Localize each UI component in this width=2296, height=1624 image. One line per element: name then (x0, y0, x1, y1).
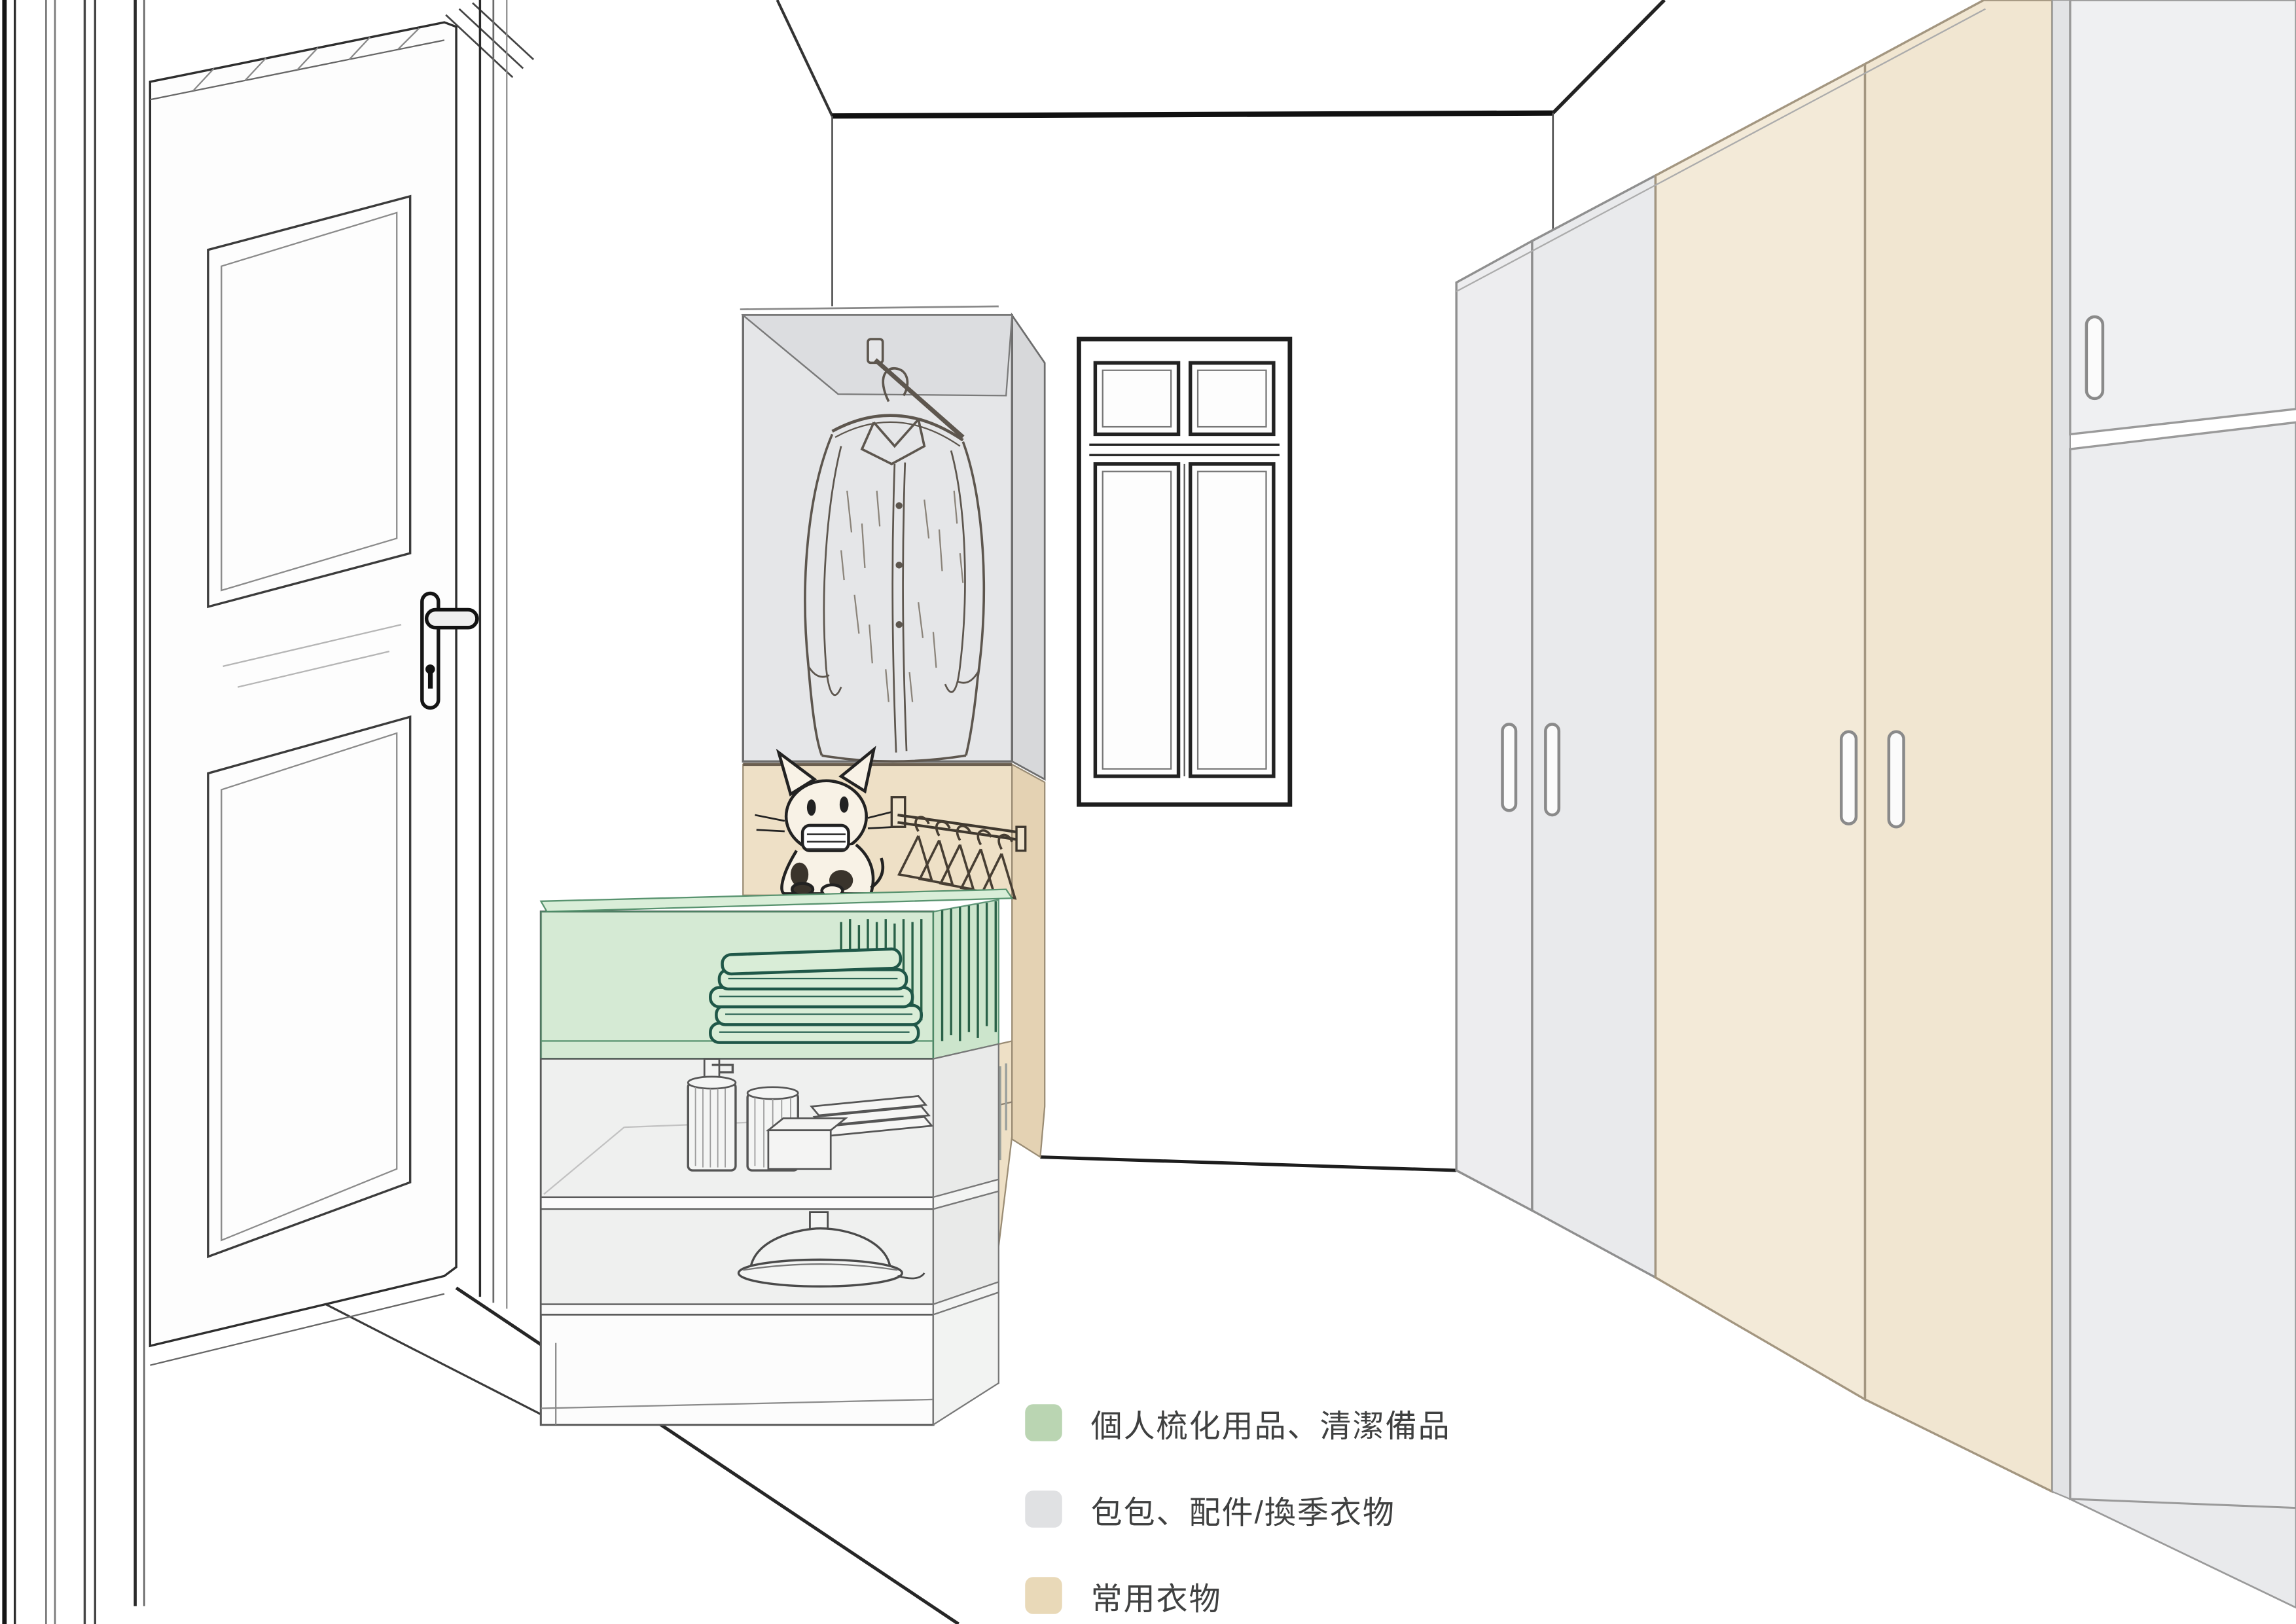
hat-shelf (541, 1209, 933, 1304)
door-handle-icon[interactable] (1503, 724, 1516, 810)
door-handle-icon[interactable] (1889, 732, 1904, 827)
wardrobe-base-side (2070, 1499, 2296, 1608)
wardrobe-door-beige-1[interactable] (1655, 64, 1865, 1399)
door-wall-trim (5, 0, 144, 1624)
dressing-room-illustration: 個人梳化用品、清潔備品 包包、配件/換季衣物 常用衣物 (0, 0, 2296, 1624)
wardrobe-door-gray-1[interactable] (1456, 241, 1532, 1210)
legend-swatch-grooming (1024, 1403, 1063, 1442)
legend-label: 包包、配件/換季衣物 (1091, 1487, 1395, 1532)
door-handle-icon[interactable] (1841, 732, 1856, 824)
door-header-hatch (446, 3, 533, 78)
tall-unit-side (1012, 316, 1045, 780)
window (1079, 339, 1289, 804)
legend-label: 個人梳化用品、清潔備品 (1091, 1400, 1451, 1446)
legend-swatch-bags (1024, 1490, 1063, 1528)
wardrobe-filler-panel (2053, 0, 2070, 1499)
folded-clothes-stack (710, 948, 921, 1042)
tall-door-far-right[interactable] (2070, 422, 2296, 1508)
lower-cabinet (541, 890, 1012, 1425)
cabinet-side-faces (933, 1044, 999, 1425)
beige-section-side (1012, 765, 1045, 1157)
door-jamb-right (480, 0, 507, 1308)
legend-label: 常用衣物 (1091, 1573, 1222, 1619)
cabinet-base (541, 1314, 933, 1424)
window-pane-bottom-left (1095, 464, 1178, 776)
lever-handle-icon (427, 610, 477, 628)
entry-door (5, 0, 533, 1624)
legend-item: 包包、配件/換季衣物 (1024, 1487, 1451, 1532)
door-handle-icon[interactable] (2087, 317, 2103, 399)
door-handle-icon[interactable] (1545, 724, 1558, 815)
scene-drawing (0, 0, 2296, 1624)
toiletries-shelf (541, 1059, 933, 1197)
window-pane-top-right (1191, 363, 1274, 434)
window-pane-top-left (1095, 363, 1178, 434)
legend-item: 個人梳化用品、清潔備品 (1024, 1400, 1451, 1446)
legend-item: 常用衣物 (1024, 1573, 1451, 1619)
legend-swatch-everyday (1024, 1576, 1063, 1615)
wardrobe-right (1456, 0, 2296, 1608)
window-pane-bottom-right (1191, 464, 1274, 776)
legend: 個人梳化用品、清潔備品 包包、配件/換季衣物 常用衣物 (1024, 1400, 1451, 1619)
